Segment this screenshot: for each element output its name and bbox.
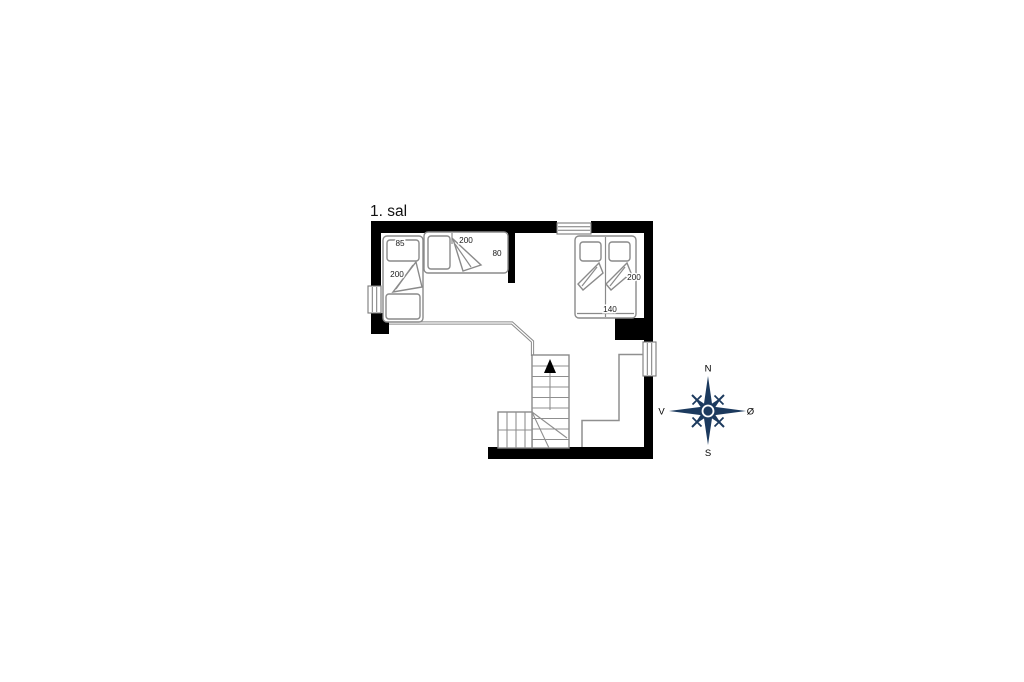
bed-single-top: 200 80: [424, 232, 508, 273]
floorplan-drawing: 1. sal: [0, 0, 1024, 682]
staircase: [498, 355, 569, 448]
bed-double: 200 140: [575, 236, 641, 318]
window-left: [368, 286, 381, 313]
compass-label-south: S: [705, 448, 711, 459]
interior-wall-right-bedroom: [615, 318, 644, 340]
floor-title: 1. sal: [370, 203, 407, 220]
window-right: [643, 342, 656, 376]
wall-top-right-segment: [591, 221, 653, 233]
floorplan-page: 1. sal: [0, 0, 1024, 682]
wall-right-lower: [644, 376, 653, 459]
pillow: [428, 236, 450, 269]
bed-foot: [386, 294, 420, 319]
compass-label-east: Ø: [747, 407, 755, 418]
wall-top-left-segment: [371, 221, 557, 233]
dim-width: 140: [603, 305, 617, 314]
compass-rose: N S V Ø: [658, 364, 754, 460]
dim-length: 200: [459, 236, 473, 245]
wall-left-upper: [371, 231, 381, 286]
wall-bottom: [488, 447, 653, 459]
interior-wall-left-bedroom: [508, 233, 515, 283]
dim-length: 200: [390, 270, 404, 279]
dim-width: 80: [492, 249, 502, 258]
dim-width: 85: [395, 239, 405, 248]
window-top: [557, 223, 591, 234]
bed-single-left: 85 200: [383, 236, 423, 322]
compass-label-north: N: [705, 364, 712, 375]
wall-right-upper: [644, 231, 653, 342]
compass-center-dot: [703, 406, 712, 415]
compass-label-west: V: [658, 407, 665, 418]
pillow-right: [609, 242, 630, 261]
stair-railing-left: [389, 323, 533, 356]
dim-length: 200: [627, 273, 641, 282]
pillow-left: [580, 242, 601, 261]
stair-railing-right: [582, 355, 643, 448]
